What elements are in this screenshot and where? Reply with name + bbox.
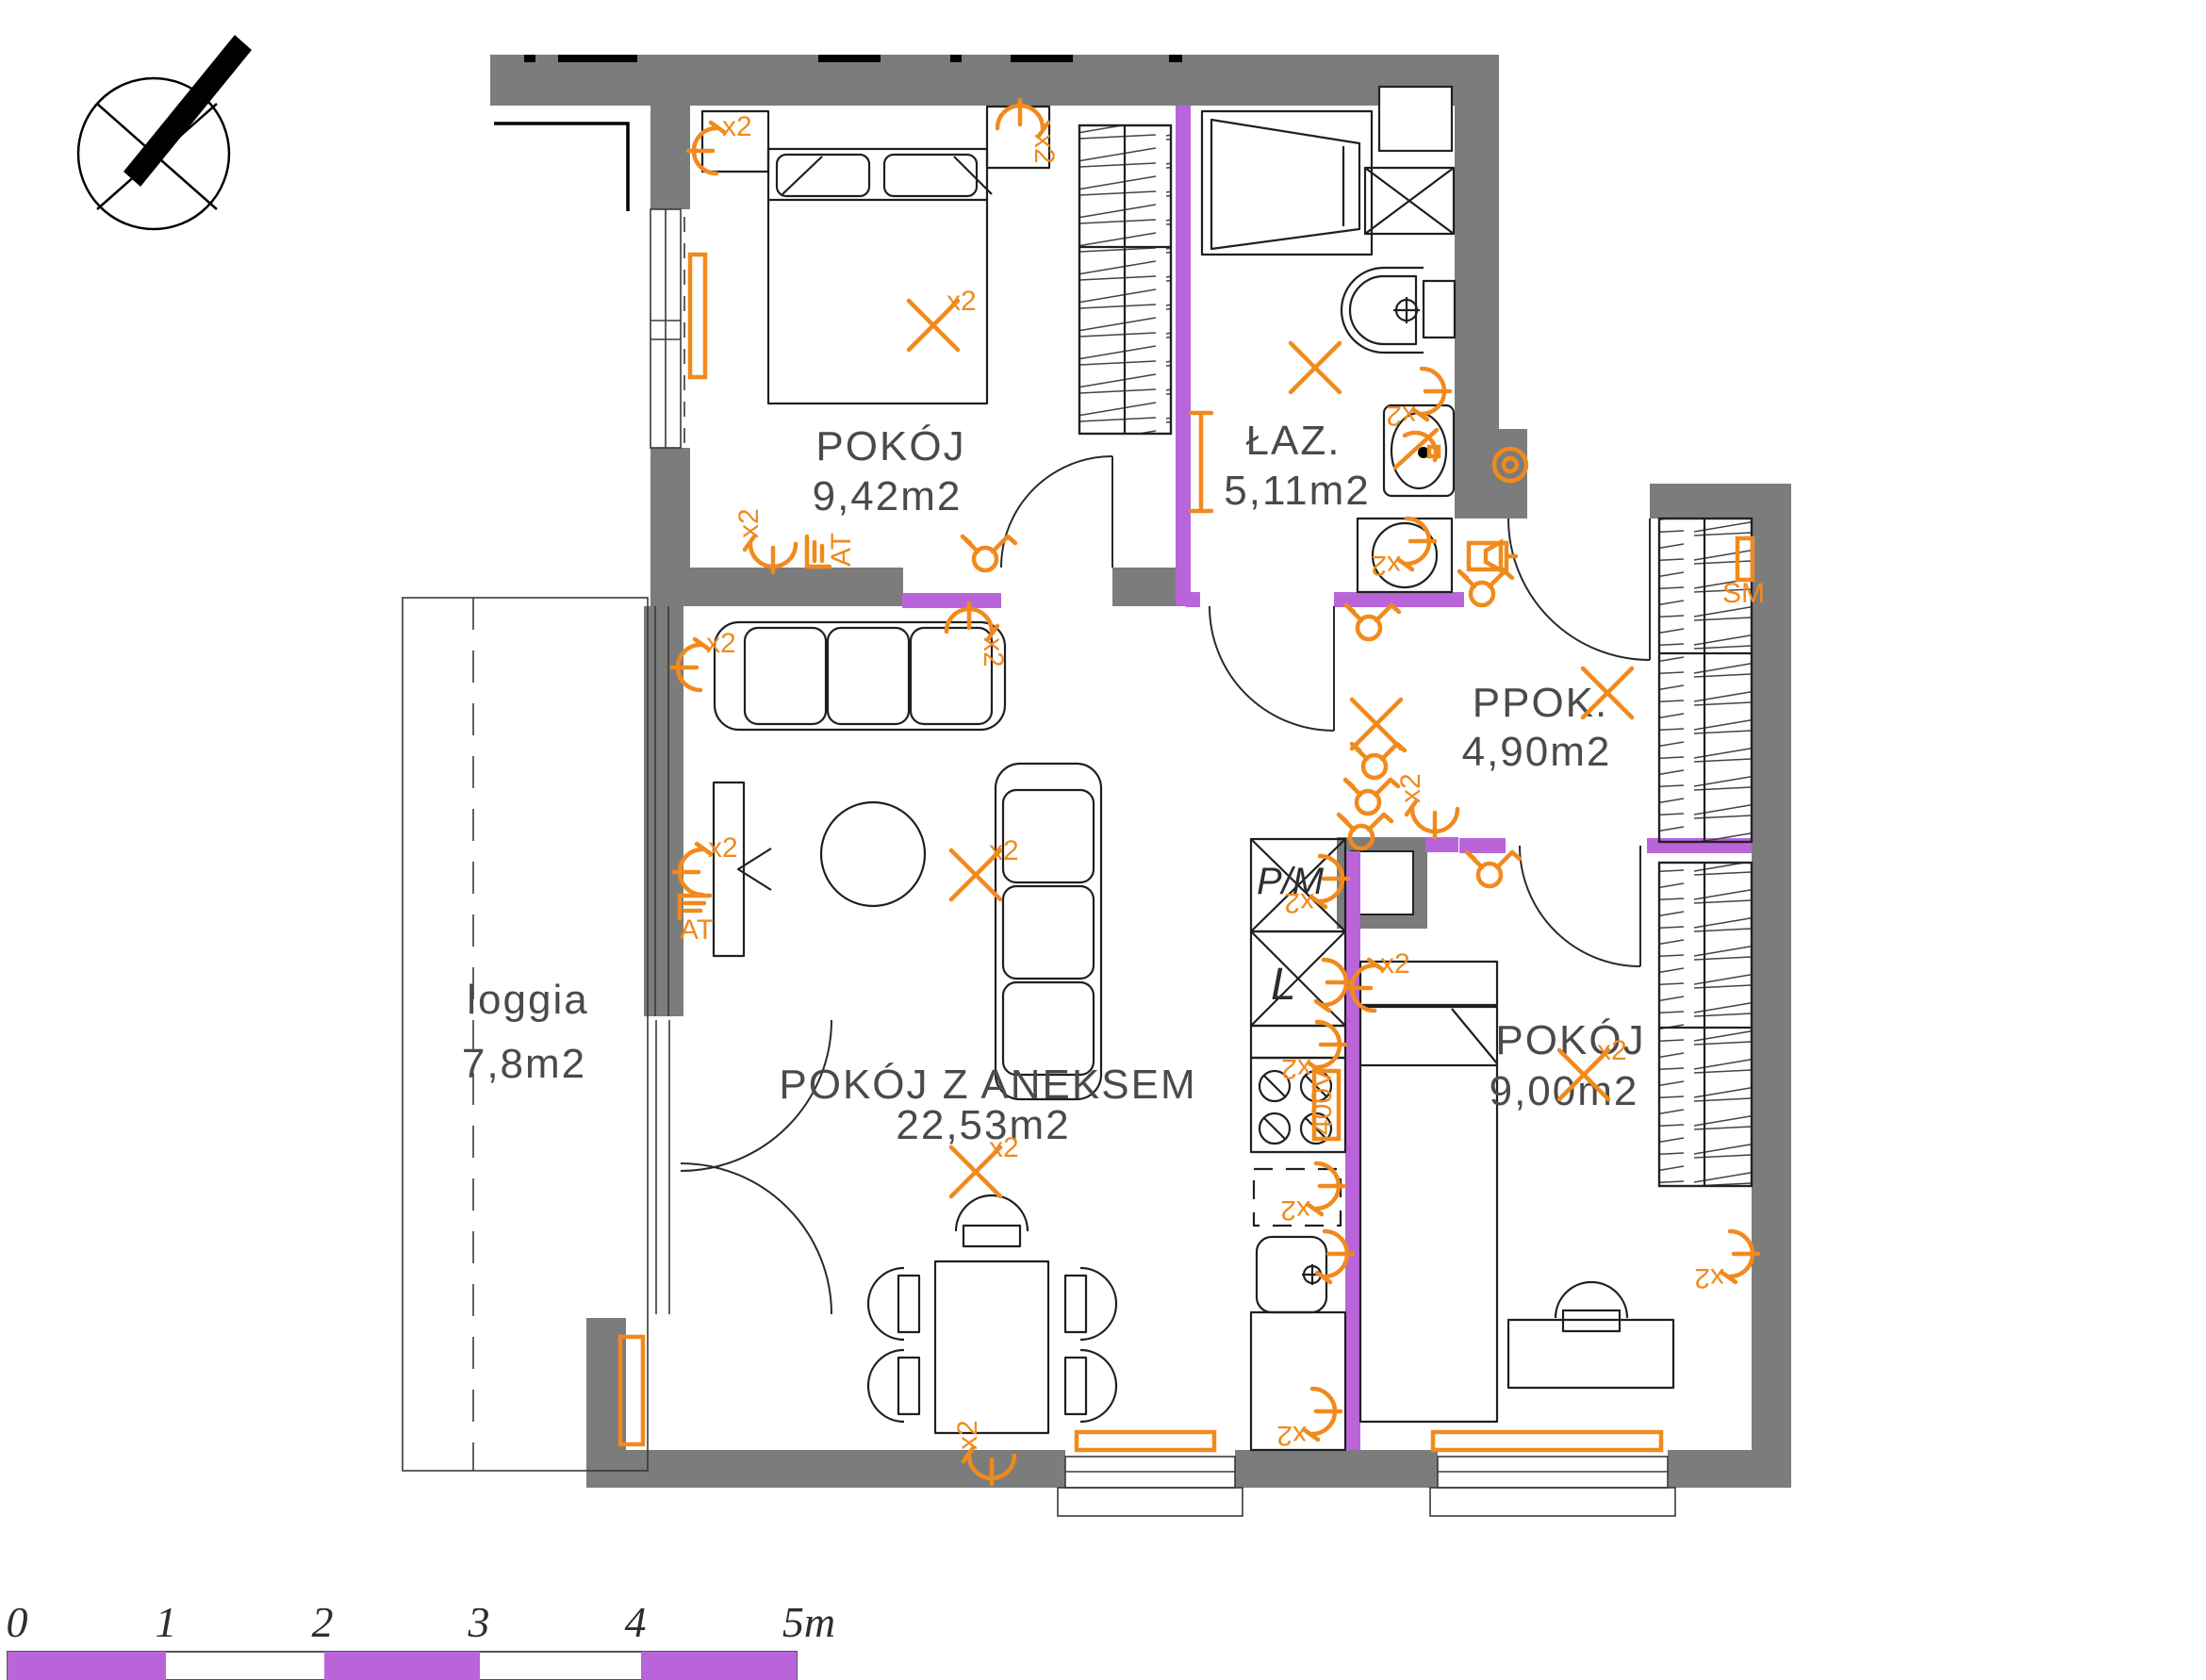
wardrobe-bedroom2 (1659, 863, 1752, 1186)
scale-2: 2 (312, 1598, 334, 1646)
living-label: POKÓJ Z ANEKSEM (779, 1062, 1196, 1108)
svg-text:x2: x2 (1029, 134, 1060, 164)
living-area: 22,53m2 (896, 1102, 1070, 1148)
radiator-icon (1077, 1432, 1214, 1450)
bathroom-area: 5,11m2 (1224, 468, 1371, 514)
svg-text:x2: x2 (708, 832, 738, 864)
radiator-icon (1433, 1432, 1661, 1450)
light-icon: x2 (909, 286, 977, 350)
compass-rose (78, 35, 252, 229)
svg-text:x2: x2 (947, 286, 977, 317)
socket-icon: x2 (1276, 1389, 1341, 1451)
socket-icon: x2 (1694, 1231, 1758, 1293)
svg-text:x2: x2 (1280, 1194, 1310, 1226)
bedroom2-area: 9,00m2 (1490, 1068, 1639, 1114)
tv-icon: AT (807, 533, 857, 567)
desk (1508, 1282, 1673, 1388)
svg-text:x2: x2 (1395, 773, 1426, 803)
sofa-right (996, 764, 1101, 1099)
scale-5m: 5m (782, 1598, 835, 1646)
svg-text:x2: x2 (989, 835, 1019, 866)
scale-bar: 0 1 2 3 4 5m (7, 1598, 836, 1680)
wardrobe-bedroom (1079, 125, 1171, 434)
entrance-door (1508, 519, 1650, 660)
bedroom-window (650, 209, 684, 448)
bedroom-label: POKÓJ (815, 423, 965, 469)
radiator-icon (690, 255, 705, 377)
svg-text:400V: 400V (1307, 1069, 1338, 1135)
svg-text:AT: AT (826, 533, 857, 567)
tv-icon: AT (680, 896, 714, 946)
bedroom2-door (1520, 846, 1640, 966)
socket-icon: x2 (1371, 519, 1435, 581)
svg-text:x2: x2 (1276, 1420, 1307, 1451)
svg-text:SM: SM (1722, 578, 1765, 609)
toilet (1342, 268, 1455, 353)
socket-icon: x2 (1280, 1163, 1344, 1226)
socket-icon: x2 (688, 111, 752, 173)
double-bed (768, 149, 992, 404)
svg-text:x2: x2 (722, 111, 752, 142)
floor-plan: POKÓJ 9,42m2 ŁAZ. 5,11m2 PPOK. 4,90m2 PO… (0, 0, 2206, 1680)
old-wall-outline (494, 124, 628, 211)
switch-icon (963, 536, 1015, 570)
north-arrow (123, 35, 252, 187)
loggia-area: 7,8m2 (462, 1041, 586, 1087)
power-icon: 400V (1307, 1069, 1339, 1139)
scale-1: 1 (156, 1598, 177, 1646)
svg-text:x2: x2 (1284, 887, 1314, 918)
socket-icon: x2 (1395, 773, 1457, 837)
dining-set (868, 1195, 1116, 1433)
socket-icon: x2 (674, 832, 738, 895)
sofa-top (715, 622, 1005, 730)
bedroom2-window-bottom (1430, 1457, 1675, 1516)
scale-4: 4 (625, 1598, 647, 1646)
svg-text:x2: x2 (952, 1420, 983, 1450)
svg-text:x2: x2 (1371, 550, 1401, 581)
hall-area: 4,90m2 (1462, 729, 1612, 775)
switch-icon (1346, 605, 1399, 639)
loggia-label: loggia (467, 977, 588, 1023)
intercom-icon (1469, 542, 1516, 570)
switch-icon (1459, 571, 1512, 605)
kitchen-units (1251, 839, 1345, 1450)
svg-text:x2: x2 (989, 1132, 1019, 1163)
svg-text:x2: x2 (1386, 400, 1416, 431)
svg-text:x2: x2 (733, 508, 765, 538)
coffee-table (821, 802, 925, 906)
bathroom-door (1210, 606, 1334, 731)
svg-text:AT: AT (680, 914, 714, 946)
svg-text:x2: x2 (978, 637, 1009, 667)
room-labels: POKÓJ 9,42m2 ŁAZ. 5,11m2 PPOK. 4,90m2 PO… (462, 418, 1646, 1148)
svg-text:x2: x2 (706, 628, 736, 659)
switch-icon (1345, 780, 1398, 814)
socket-icon: x2 (733, 508, 796, 572)
tap-icon (1395, 430, 1439, 468)
svg-text:x2: x2 (1597, 1035, 1627, 1066)
light-icon (1291, 343, 1340, 392)
single-bed (1360, 962, 1497, 1422)
socket-icon: x2 (947, 603, 1009, 667)
bathtub (1202, 111, 1372, 255)
hall-label: PPOK. (1473, 680, 1609, 726)
switch-icon (1467, 852, 1520, 886)
towel-icon (1191, 413, 1211, 511)
scale-3: 3 (468, 1598, 490, 1646)
light-icon (1352, 700, 1401, 749)
wall-niche (1379, 87, 1452, 151)
switch-icon (1352, 744, 1405, 778)
socket-icon: x2 (1386, 369, 1450, 431)
bedroom-area: 9,42m2 (813, 473, 963, 519)
svg-text:x2: x2 (1694, 1262, 1724, 1293)
living-window-bottom (1058, 1457, 1243, 1516)
bedroom-door (1001, 456, 1112, 568)
svg-text:x2: x2 (1380, 948, 1410, 980)
electrical-symbols: x2x2x2x2x2x2x2ATx2x2x2ATx2x2x2400Vx2x2x2… (620, 100, 1765, 1484)
kitchen-fridge-label: L (1271, 960, 1296, 1010)
vent-shaft (1365, 168, 1454, 234)
bathroom-label: ŁAZ. (1246, 418, 1342, 464)
scale-0: 0 (7, 1598, 28, 1646)
